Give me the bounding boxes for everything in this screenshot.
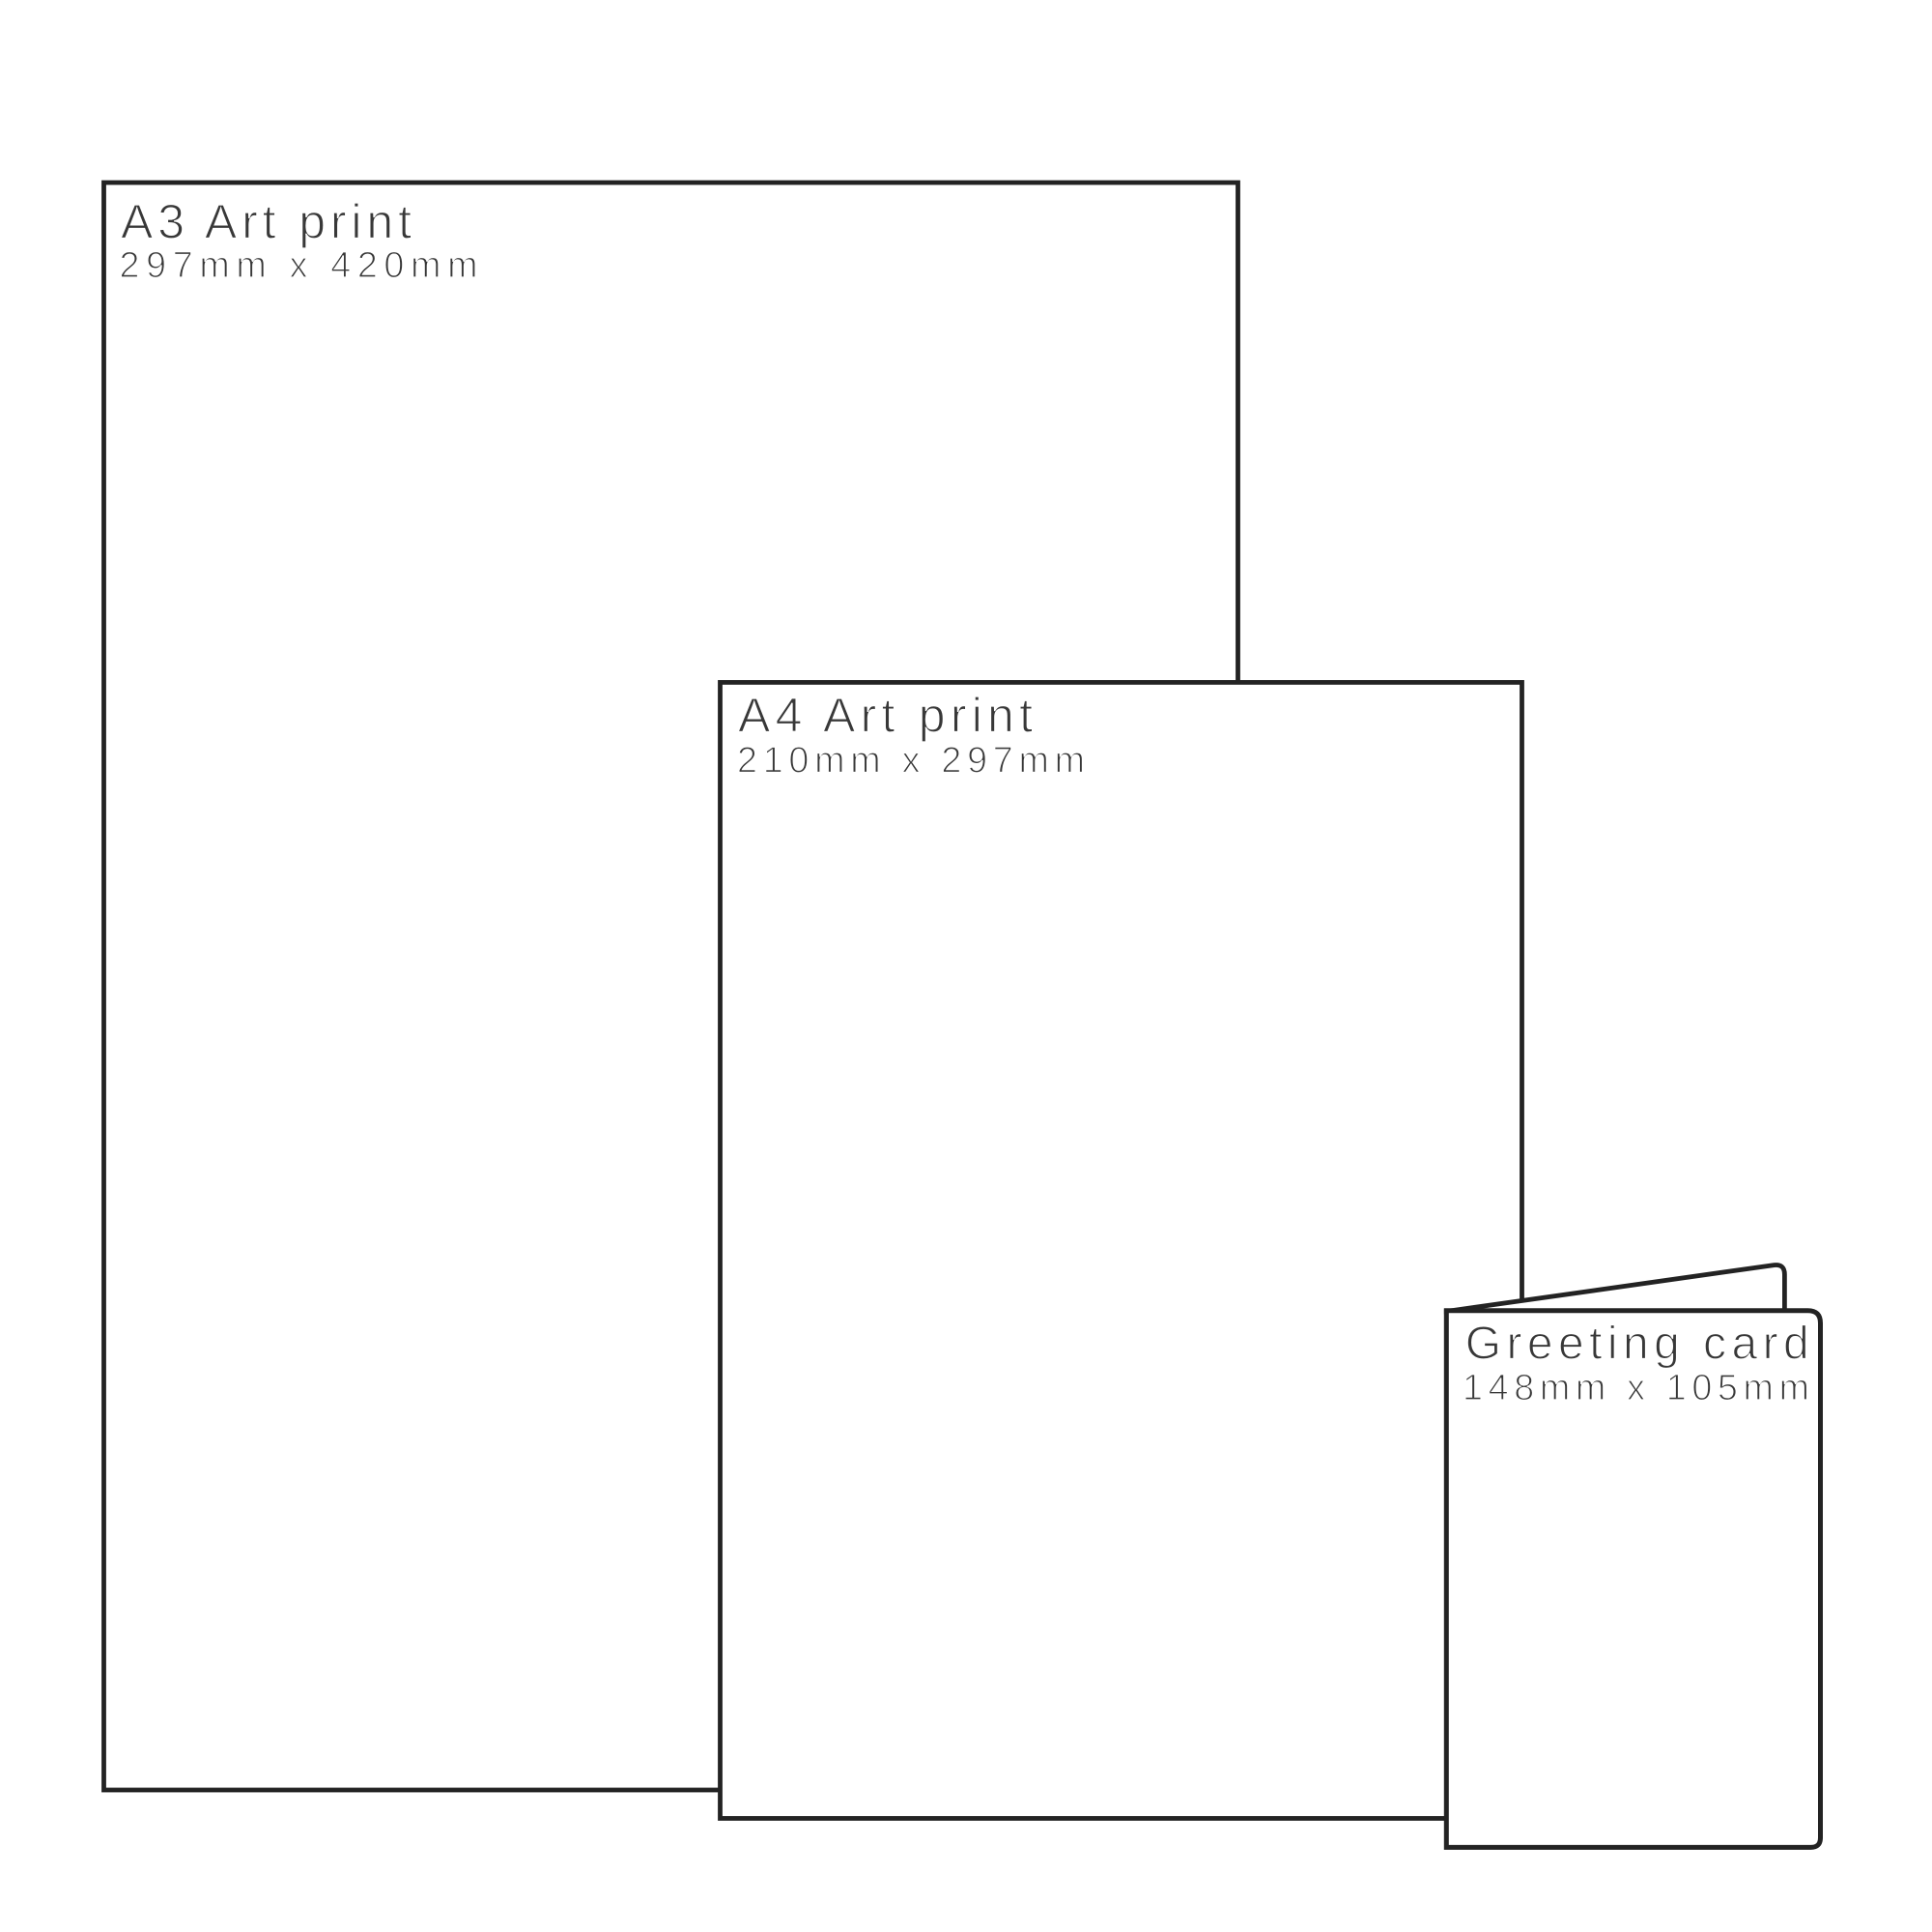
svg-text:297mm x 420mm: 297mm x 420mm	[120, 244, 478, 285]
svg-text:210mm x 297mm: 210mm x 297mm	[737, 739, 1085, 780]
svg-text:A4 Art print: A4 Art print	[738, 688, 1033, 742]
svg-text:148mm x 105mm: 148mm x 105mm	[1463, 1367, 1809, 1407]
svg-text:A3 Art print: A3 Art print	[121, 194, 412, 248]
